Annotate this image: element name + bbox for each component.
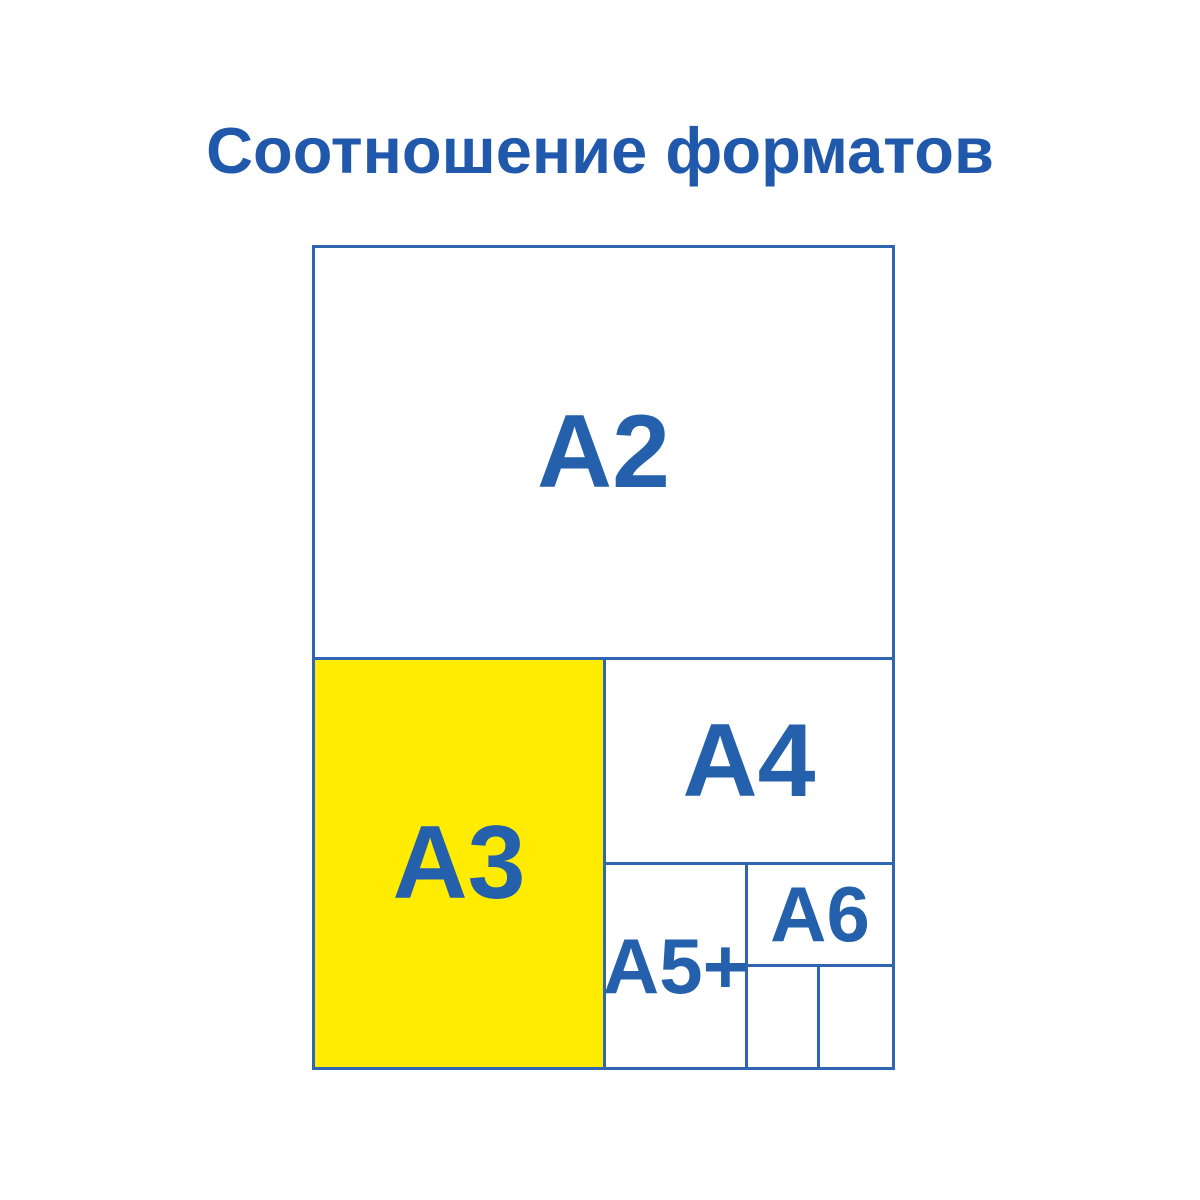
format-cell-a4: A4 <box>606 660 892 862</box>
format-cell-a2: A2 <box>315 248 892 657</box>
format-label-a3: A3 <box>393 804 526 923</box>
format-cell-a7-left <box>748 967 817 1067</box>
divider-between-a7-cells <box>817 967 820 1067</box>
format-label-a5plus: A5+ <box>603 921 748 1012</box>
format-cell-a6: A6 <box>748 865 892 964</box>
format-cell-a5plus: A5+ <box>606 865 745 1067</box>
page-title: Соотношение форматов <box>0 106 1200 196</box>
format-label-a2: A2 <box>537 393 670 512</box>
format-cell-a7-right <box>820 967 892 1067</box>
format-label-a4: A4 <box>683 702 816 821</box>
format-label-a6: A6 <box>770 869 870 960</box>
format-ratio-diagram: A2 A3 A4 A5+ A6 <box>312 245 895 1070</box>
format-cell-a3-highlighted: A3 <box>315 660 603 1067</box>
paper-format-infographic: Соотношение форматов A2 A3 A4 A5+ A6 <box>0 0 1200 1200</box>
